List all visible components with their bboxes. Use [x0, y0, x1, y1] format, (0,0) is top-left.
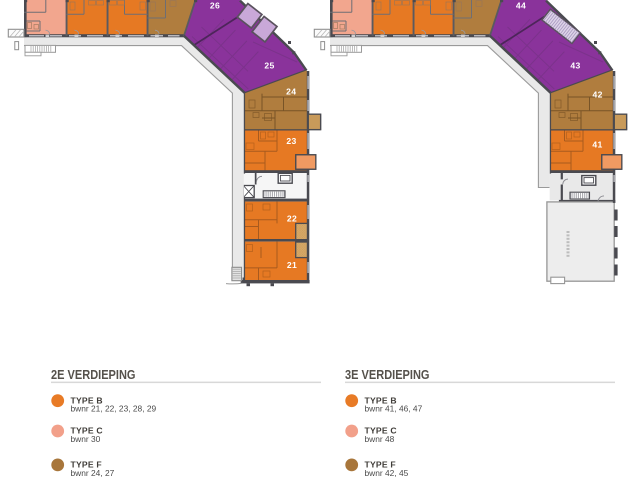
svg-text:bwnr 48: bwnr 48 — [365, 434, 395, 444]
svg-text:24: 24 — [286, 87, 296, 97]
svg-text:25: 25 — [264, 61, 274, 71]
svg-text:21: 21 — [287, 260, 297, 270]
svg-text:2E VERDIEPING: 2E VERDIEPING — [51, 367, 136, 382]
svg-text:bwnr 42, 45: bwnr 42, 45 — [365, 468, 409, 478]
svg-text:41: 41 — [592, 139, 602, 149]
svg-text:bwnr 30: bwnr 30 — [71, 434, 101, 444]
svg-text:23: 23 — [286, 136, 296, 146]
svg-text:bwnr 41, 46, 47: bwnr 41, 46, 47 — [365, 404, 423, 414]
svg-text:bwnr 24, 27: bwnr 24, 27 — [71, 468, 115, 478]
svg-text:22: 22 — [287, 214, 297, 224]
svg-text:42: 42 — [593, 89, 603, 99]
svg-text:3E VERDIEPING: 3E VERDIEPING — [345, 367, 430, 382]
svg-text:26: 26 — [210, 1, 220, 11]
svg-text:44: 44 — [516, 1, 526, 11]
svg-text:bwnr 21, 22, 23, 28, 29: bwnr 21, 22, 23, 28, 29 — [71, 404, 157, 414]
svg-text:43: 43 — [570, 61, 580, 71]
